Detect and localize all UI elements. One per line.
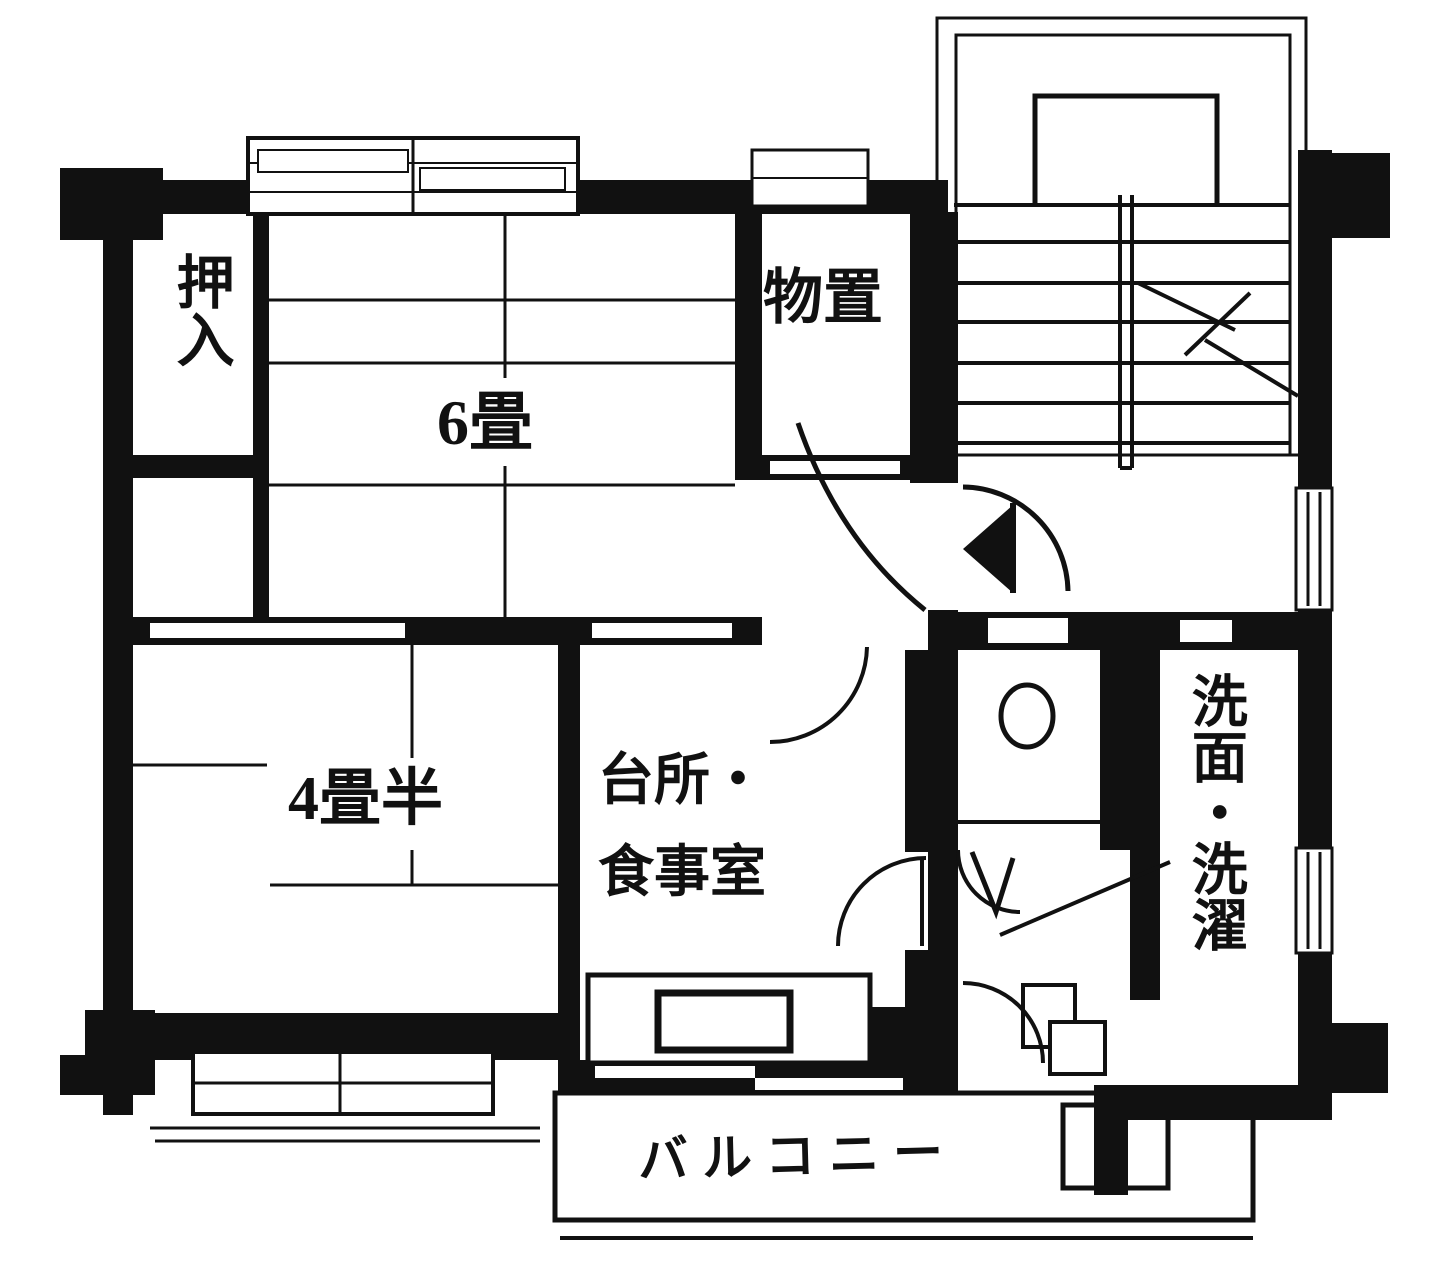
room-label-6-mat: 6畳 bbox=[437, 385, 533, 462]
floor-plan: 押入 6畳 物置 4畳半 台所・ 食事室 洗面・洗濯 バルコニー bbox=[0, 0, 1449, 1261]
room-label-washroom: 洗面・洗濯 bbox=[1180, 672, 1247, 952]
room-label-kitchen-line1: 台所・ bbox=[598, 748, 766, 815]
room-label-balcony: バルコニー bbox=[637, 1122, 957, 1190]
room-label-storage: 物置 bbox=[763, 262, 883, 334]
room-label-4-half-mat: 4畳半 bbox=[288, 762, 443, 836]
kitchen-sink-icon bbox=[588, 975, 870, 1063]
room-label-kitchen-line2: 食事室 bbox=[598, 840, 766, 907]
room-label-oshiire: 押入 bbox=[165, 252, 235, 368]
floor-plan-drawing bbox=[0, 0, 1449, 1261]
